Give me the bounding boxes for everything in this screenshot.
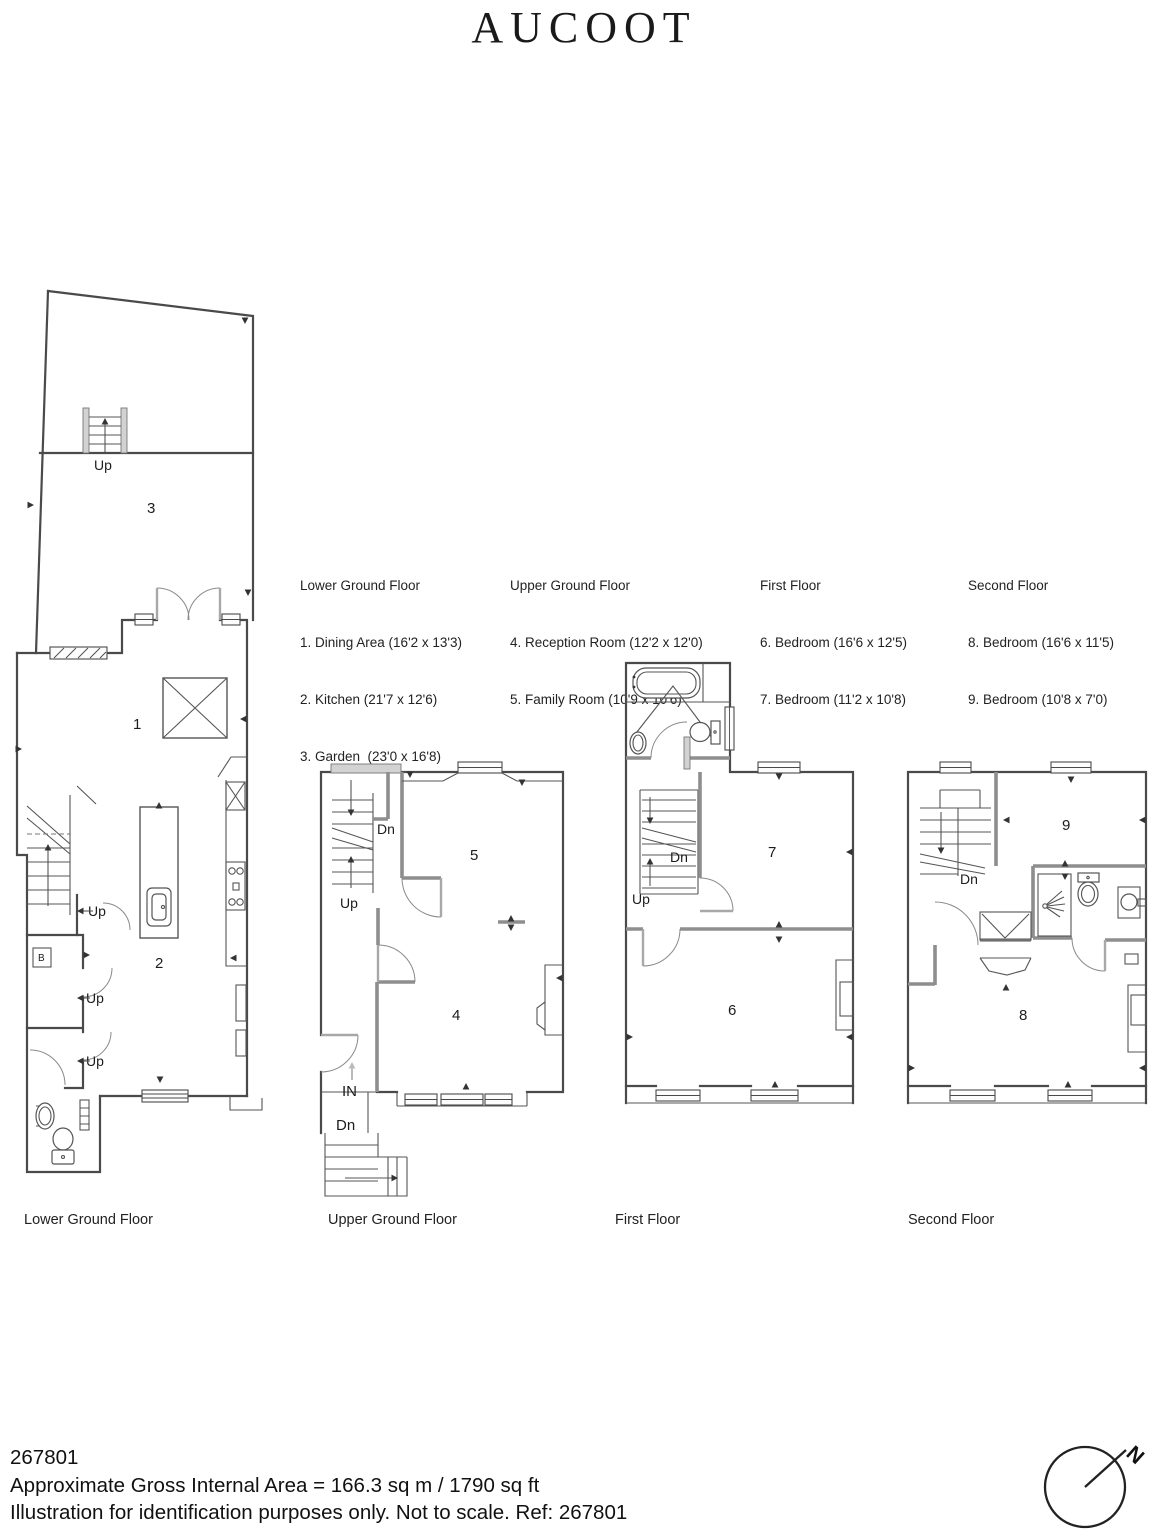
north-label: N xyxy=(1122,1442,1149,1469)
french-doors-icon xyxy=(157,588,220,620)
shower-icon xyxy=(1043,891,1065,917)
doors xyxy=(378,878,441,982)
caption-first-floor: First Floor xyxy=(615,1212,680,1228)
footer-area: Approximate Gross Internal Area = 166.3 … xyxy=(10,1472,627,1500)
alcove xyxy=(1125,954,1146,1052)
legend-item: 2. Kitchen (21'7 x 12'6) xyxy=(300,690,462,709)
room-number-reception: 4 xyxy=(452,1007,460,1024)
room-number-garden: 3 xyxy=(147,500,155,517)
fireplace xyxy=(836,960,853,1030)
stairs-ff xyxy=(640,790,698,894)
outline xyxy=(908,772,1146,1103)
bathroom xyxy=(626,663,730,769)
external-dn-label: Dn xyxy=(336,1117,355,1134)
stairs-dn-label: Dn xyxy=(670,849,688,865)
windows xyxy=(656,707,800,1101)
brand-logo: AUCOOT xyxy=(0,2,1168,53)
windows xyxy=(940,762,1092,1101)
closet xyxy=(980,912,1031,975)
entrance-in-label: IN xyxy=(342,1083,357,1100)
sink-icon xyxy=(36,1103,54,1129)
room-number-bedroom7: 7 xyxy=(768,844,776,861)
fireplace xyxy=(537,965,563,1035)
caption-second-floor: Second Floor xyxy=(908,1212,994,1228)
room-number-bedroom8: 8 xyxy=(1019,1007,1027,1024)
toilet-icon xyxy=(52,1128,74,1164)
doors xyxy=(643,878,733,966)
floor-plan-lower-ground: Up 3 1 xyxy=(14,283,264,1180)
bathtub-icon xyxy=(633,668,700,698)
sink-icon xyxy=(1118,887,1146,918)
skylight xyxy=(163,678,227,738)
footer: 267801 Approximate Gross Internal Area =… xyxy=(10,1444,627,1527)
garden-up-label: Up xyxy=(94,457,112,473)
entrance-door xyxy=(321,1035,358,1080)
garden-stairs xyxy=(83,408,127,453)
stairs-dn-label: Dn xyxy=(377,821,395,837)
legend-item: 9. Bedroom (10'8 x 7'0) xyxy=(968,690,1114,709)
stairs-dn-label: Dn xyxy=(960,871,978,887)
floor-plan-upper-ground: Dn Up 5 4 IN Dn xyxy=(318,750,574,1210)
compass-icon: N xyxy=(1036,1434,1156,1534)
stairs-up-label: Up xyxy=(340,895,358,911)
internal-walls xyxy=(908,772,1146,985)
external-stairs xyxy=(325,1092,407,1196)
footer-disclaimer: Illustration for identification purposes… xyxy=(10,1499,627,1527)
legend-title: Second Floor xyxy=(968,576,1114,595)
caption-lower-ground: Lower Ground Floor xyxy=(24,1212,153,1228)
legend-second-floor: Second Floor 8. Bedroom (16'6 x 11'5) 9.… xyxy=(968,538,1114,728)
legend-title: Lower Ground Floor xyxy=(300,576,462,595)
floor-plan-second: Dn 9 8 xyxy=(898,755,1154,1140)
windows xyxy=(331,762,512,1105)
wc xyxy=(30,1050,89,1164)
legend-lower-ground: Lower Ground Floor 1. Dining Area (16'2 … xyxy=(300,538,462,785)
legend-title: First Floor xyxy=(760,576,907,595)
internal-walls xyxy=(377,772,563,1092)
hob-icon xyxy=(226,862,245,910)
room-number-bedroom6: 6 xyxy=(728,1002,736,1019)
floor-plan-first: Dn Up 7 6 xyxy=(608,650,864,1142)
footer-ref-number: 267801 xyxy=(10,1444,627,1472)
internal-walls xyxy=(626,772,853,929)
legend-item: 1. Dining Area (16'2 x 13'3) xyxy=(300,633,462,652)
boiler-label: B xyxy=(38,953,45,964)
legend-title: Upper Ground Floor xyxy=(510,576,703,595)
sink-icon xyxy=(630,732,646,754)
outline xyxy=(626,663,853,1103)
room-number-kitchen: 2 xyxy=(155,955,163,972)
room-number-dining: 1 xyxy=(133,716,141,733)
room-number-family: 5 xyxy=(470,847,478,864)
kitchen-counter xyxy=(218,757,247,1056)
stairs-lgf xyxy=(27,786,130,935)
room-number-bedroom9: 9 xyxy=(1062,817,1070,834)
legend-item: 8. Bedroom (16'6 x 11'5) xyxy=(968,633,1114,652)
stairs-sf xyxy=(920,790,991,876)
toilet-icon xyxy=(690,721,720,744)
caption-upper-ground: Upper Ground Floor xyxy=(328,1212,457,1228)
shower-room xyxy=(1038,873,1146,936)
kitchen-island xyxy=(140,802,178,938)
outline xyxy=(321,772,563,1133)
toilet-icon xyxy=(1078,873,1099,906)
stairs-up-label: Up xyxy=(632,891,650,907)
